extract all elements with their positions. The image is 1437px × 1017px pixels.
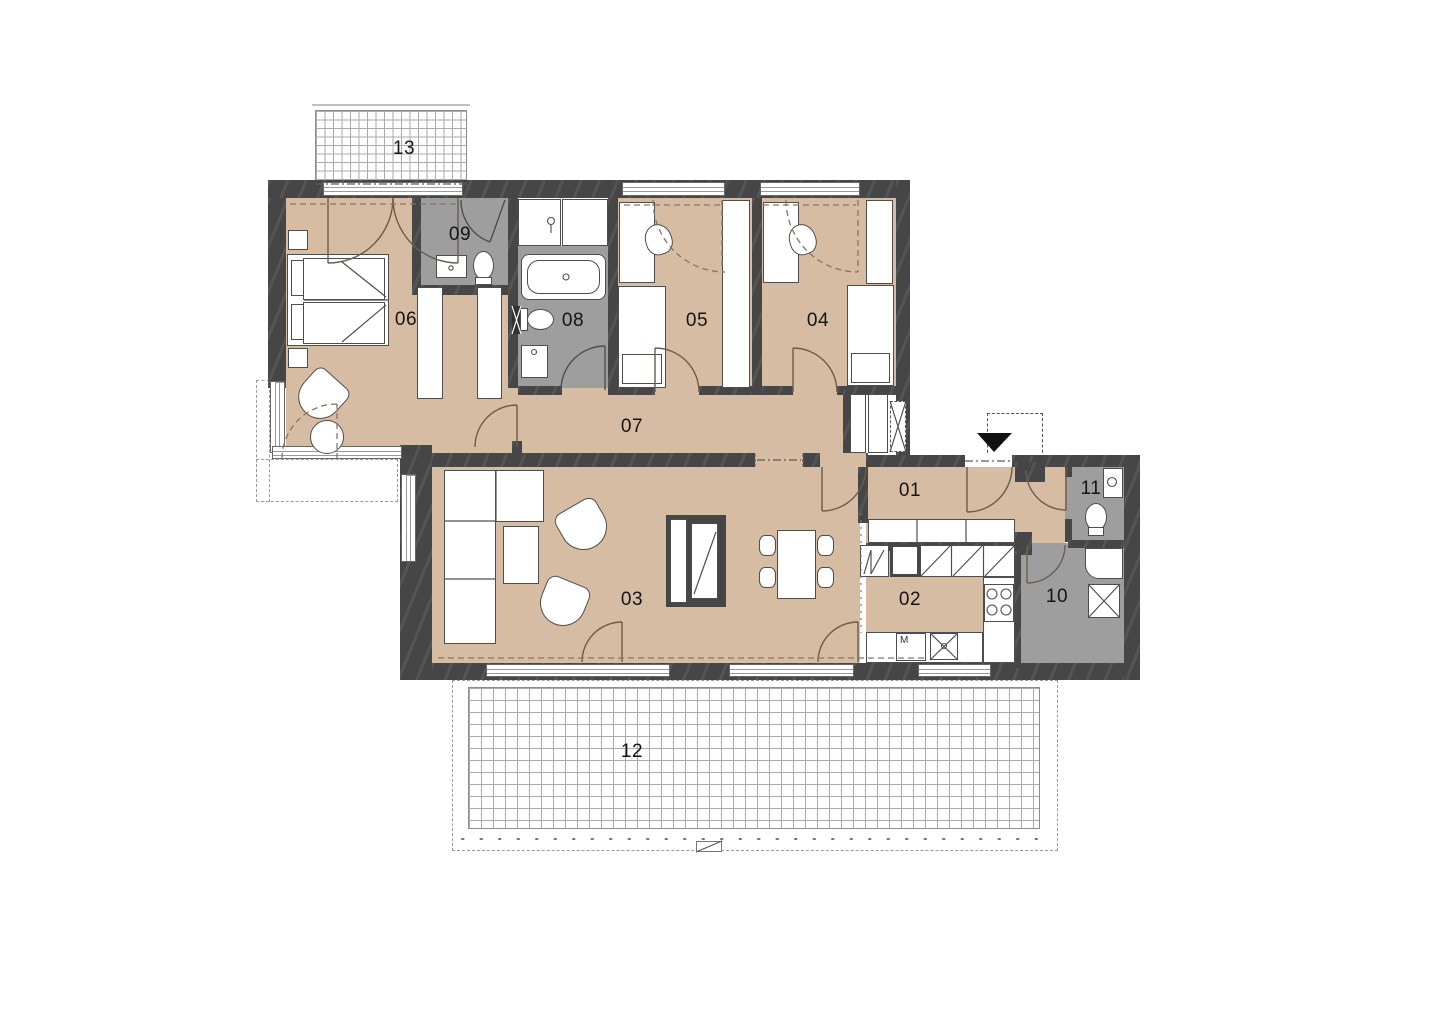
room-label-03: 03 (621, 589, 643, 611)
dining-table (777, 530, 816, 599)
window-kitchen (918, 664, 991, 677)
room-label-06: 06 (395, 309, 417, 331)
wall-segment (608, 198, 618, 395)
window-living-2 (729, 664, 854, 677)
dining-chair (817, 567, 834, 588)
bed-blanket (622, 354, 662, 384)
room-label-11: 11 (1081, 478, 1102, 500)
room-label-09: 09 (449, 224, 471, 246)
balcony-door-06 (323, 182, 463, 196)
tv-sideboard (670, 519, 687, 603)
corner-sofa-chaise (444, 470, 496, 644)
fridge (860, 545, 889, 577)
stove (984, 584, 1014, 622)
room-label-12: 12 (621, 741, 643, 763)
side-table (310, 420, 344, 454)
room-label-02: 02 (899, 589, 921, 611)
washbasin (521, 345, 548, 378)
opening-hall-to-living (755, 453, 803, 467)
wardrobe (722, 200, 750, 388)
mattress (303, 258, 385, 300)
kitchen-sink (930, 633, 958, 660)
nightstand (288, 230, 308, 250)
wall-segment (843, 390, 850, 453)
toilet-tank (520, 308, 528, 331)
appliance-label-m: M (900, 635, 908, 646)
dining-chair (817, 535, 834, 556)
french-balcony-outline-bottom (256, 459, 398, 502)
wall-segment (1015, 551, 1021, 668)
wardrobe (417, 287, 443, 399)
window-room-05 (622, 182, 725, 196)
wall-segment (1068, 540, 1124, 548)
toilet-tank (475, 277, 492, 285)
dining-chair (759, 567, 776, 588)
nightstand (288, 348, 308, 368)
coffee-table (503, 526, 539, 584)
wall-segment (518, 386, 562, 395)
room-label-07: 07 (621, 416, 643, 438)
closet (850, 394, 866, 453)
wall-segment (512, 441, 522, 453)
door-opening-wc-11 (1065, 477, 1072, 519)
balcony-13-grid (315, 110, 467, 183)
toilet (473, 251, 494, 280)
wardrobe (477, 287, 502, 399)
closet (868, 394, 888, 453)
tv-screen (691, 523, 718, 599)
bathtub-inner (527, 260, 600, 294)
wall-segment (412, 198, 421, 295)
pillow (291, 304, 304, 340)
wall-segment (858, 467, 868, 523)
shower-entry (562, 199, 608, 246)
entrance-porch-outline (987, 413, 1043, 458)
built-in-wardrobe (868, 519, 1015, 543)
room-label-13: 13 (393, 138, 415, 160)
door-opening-hall-living (820, 453, 866, 467)
wall-segment (508, 198, 518, 388)
window-room-06-left (270, 381, 285, 453)
washbasin (436, 255, 467, 278)
shower-tray (518, 199, 561, 246)
room-label-10: 10 (1046, 586, 1068, 608)
boiler (1085, 548, 1123, 579)
window-living-left (401, 474, 416, 562)
apartment-floor-plan: 01 02 03 04 05 06 07 08 09 10 11 12 13 M (0, 0, 1437, 1017)
window-room-04 (760, 182, 860, 196)
room-label-04: 04 (807, 310, 829, 332)
terrace-drain-symbol (696, 841, 722, 852)
kitchen-tall-cabinets (920, 545, 1015, 577)
duct-shaft (890, 401, 906, 452)
entrance-door-opening (965, 455, 1012, 467)
wall-segment (762, 386, 793, 395)
wall-segment (1124, 455, 1140, 680)
room-label-08: 08 (562, 310, 584, 332)
mattress (303, 302, 385, 344)
washbasin (1103, 468, 1123, 498)
window-living-1 (486, 664, 670, 677)
room-label-05: 05 (686, 310, 708, 332)
washing-machine (1088, 584, 1120, 618)
duct-shaft (890, 544, 920, 577)
wall-segment (752, 198, 762, 395)
toilet-tank (1088, 527, 1104, 536)
toilet (527, 309, 554, 330)
bed-blanket (851, 353, 890, 383)
dining-chair (759, 535, 776, 556)
wardrobe (866, 200, 893, 284)
room-label-01: 01 (899, 480, 921, 502)
terrace-12-grid (468, 687, 1040, 829)
wall-segment (1015, 462, 1045, 482)
wall-segment (268, 198, 286, 388)
pillow (291, 260, 304, 296)
